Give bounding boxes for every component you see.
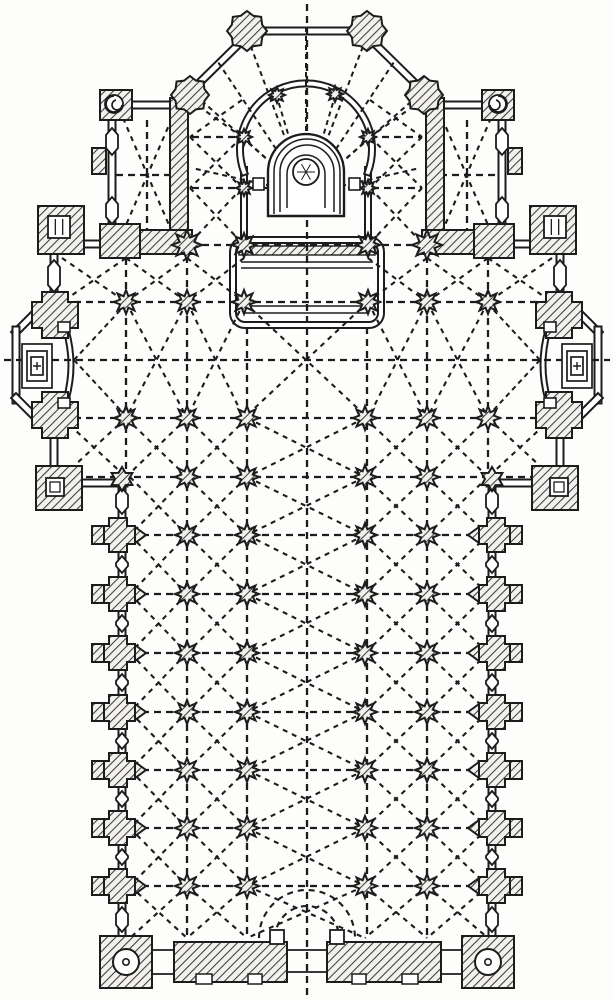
west-front-wall-left — [174, 942, 287, 982]
pier-star-nave-3-1 — [235, 700, 259, 724]
nave-left-buttress-tab-6 — [92, 877, 104, 895]
wall-window-4-1 — [106, 197, 118, 224]
wall-window-0-7 — [116, 907, 128, 932]
pier-star-nave-2-3 — [415, 641, 439, 665]
pier-star-r3-2 — [353, 465, 377, 489]
nave-left-buttress-tab-3 — [92, 703, 104, 721]
nave-left-buttress-tab-0 — [92, 526, 104, 544]
colonnade-star-1 — [327, 86, 343, 102]
nave-right-buttress-tab-5 — [510, 819, 522, 837]
pier-star-nave-4-3 — [415, 758, 439, 782]
pier-star-nave-6-1 — [235, 874, 259, 898]
apse-corner-pier-0 — [227, 11, 267, 51]
chapel-left-east-wall — [170, 98, 188, 242]
chapel-left-corner-mass — [100, 224, 140, 258]
wall-window-5-0 — [496, 128, 508, 155]
nave-left-buttress-tab-1 — [92, 585, 104, 603]
wall-window-5-1 — [496, 197, 508, 224]
portal-jamb-block-1 — [330, 930, 344, 944]
pier-star-nave-6-0 — [175, 874, 199, 898]
pier-star-nave-3-0 — [175, 700, 199, 724]
pier-star-nave-6-3 — [415, 874, 439, 898]
apse-corner-pier-3 — [405, 76, 443, 114]
colonnade-star-2 — [236, 129, 252, 145]
pier-star-nave-3-3 — [415, 700, 439, 724]
nave-right-buttress-tab-0 — [510, 526, 522, 544]
pier-star-nave-3-2 — [353, 700, 377, 724]
west-turret-stair-circle-1 — [475, 949, 501, 975]
pier-star-r1-0 — [114, 290, 138, 314]
west-front-wall-right — [327, 942, 441, 982]
chapel-mouth-jamb-0 — [58, 322, 70, 332]
apse-corner-pier-1 — [347, 11, 387, 51]
corner-stair-cage-1 — [544, 216, 566, 238]
chapel-right-buttress-tab — [508, 148, 522, 174]
colonnade-star-3 — [360, 129, 376, 145]
facade-niche-0 — [196, 974, 212, 984]
wall-window-1-7 — [486, 907, 498, 932]
pier-star-r0-1 — [356, 233, 380, 257]
facade-niche-2 — [352, 974, 366, 984]
pier-star-r2-5 — [476, 406, 500, 430]
facade-niche-1 — [248, 974, 262, 984]
pier-star-r3-1 — [235, 465, 259, 489]
plan-svg — [0, 0, 614, 1000]
nave-right-buttress-tab-1 — [510, 585, 522, 603]
chapel-right-corner-mass — [474, 224, 514, 258]
corner-stair-cage-0 — [48, 216, 70, 238]
chapel-left-buttress-tab — [92, 148, 106, 174]
portal-jamb-block-0 — [270, 930, 284, 944]
pier-star-r1-4 — [415, 290, 439, 314]
pier-star-nave-5-1 — [235, 816, 259, 840]
apse-niche-jamb-1 — [349, 178, 360, 190]
apse-niche-jamb-0 — [253, 178, 264, 190]
pier-star-nave-2-0 — [175, 641, 199, 665]
pier-star-nave-1-1 — [235, 582, 259, 606]
pier-star-r2-2 — [235, 406, 259, 430]
pier-star-r1-2 — [232, 290, 256, 314]
pier-star-r2-4 — [415, 406, 439, 430]
pier-star-r2-3 — [353, 406, 377, 430]
pier-star-nave-1-2 — [353, 582, 377, 606]
nave-left-buttress-tab-5 — [92, 819, 104, 837]
pier-star-nave-2-1 — [235, 641, 259, 665]
nave-right-buttress-tab-3 — [510, 703, 522, 721]
pier-star-r0-0 — [232, 233, 256, 257]
pier-star-nave-0-3 — [415, 523, 439, 547]
chapel-mouth-jamb-1 — [58, 398, 70, 408]
pier-star-nave-6-2 — [353, 874, 377, 898]
nave-right-buttress-tab-6 — [510, 877, 522, 895]
colonnade-star-4 — [236, 180, 252, 196]
pier-star-nave-1-3 — [415, 582, 439, 606]
pier-star-r3-0 — [175, 465, 199, 489]
floor-plan-figure — [0, 0, 614, 1000]
chapel-mouth-jamb-2 — [544, 322, 556, 332]
wall-window-3-0 — [554, 260, 566, 292]
wall-window-2-0 — [48, 260, 60, 292]
pier-star-nave-5-2 — [353, 816, 377, 840]
choir-corner-pier-1 — [412, 230, 442, 260]
facade-niche-3 — [402, 974, 418, 984]
apse-corner-pier-2 — [171, 76, 209, 114]
pier-star-nave-0-1 — [235, 523, 259, 547]
pier-star-r2-0 — [114, 406, 138, 430]
pier-star-nave-1-0 — [175, 582, 199, 606]
west-turret-stair-circle-0 — [113, 949, 139, 975]
nave-left-buttress-tab-4 — [92, 761, 104, 779]
pier-star-nave-0-2 — [353, 523, 377, 547]
wall-window-4-0 — [106, 128, 118, 155]
chapel-spiral-stair-circle-0 — [105, 95, 123, 113]
chapel-right-west-wall — [426, 98, 444, 242]
colonnade-star-5 — [360, 180, 376, 196]
pier-star-r3-3 — [415, 465, 439, 489]
pier-star-nave-4-0 — [175, 758, 199, 782]
nave-right-buttress-tab-4 — [510, 761, 522, 779]
pier-star-nave-0-0 — [175, 523, 199, 547]
pier-star-r2-1 — [175, 406, 199, 430]
chapel-spiral-stair-circle-1 — [489, 95, 507, 113]
pier-star-r1-1 — [175, 290, 199, 314]
pier-star-nave-4-2 — [353, 758, 377, 782]
pier-star-nave-4-1 — [235, 758, 259, 782]
nave-left-buttress-tab-2 — [92, 644, 104, 662]
pier-star-nave-5-0 — [175, 816, 199, 840]
pier-star-r1-5 — [476, 290, 500, 314]
pier-star-nave-5-3 — [415, 816, 439, 840]
chapel-mouth-jamb-3 — [544, 398, 556, 408]
nave-right-buttress-tab-2 — [510, 644, 522, 662]
corner-stair-cage-3 — [550, 478, 568, 496]
corner-stair-cage-2 — [46, 478, 64, 496]
pier-star-r1-3 — [356, 290, 380, 314]
colonnade-star-0 — [269, 87, 285, 103]
pier-star-nave-2-2 — [353, 641, 377, 665]
choir-corner-pier-0 — [172, 230, 202, 260]
